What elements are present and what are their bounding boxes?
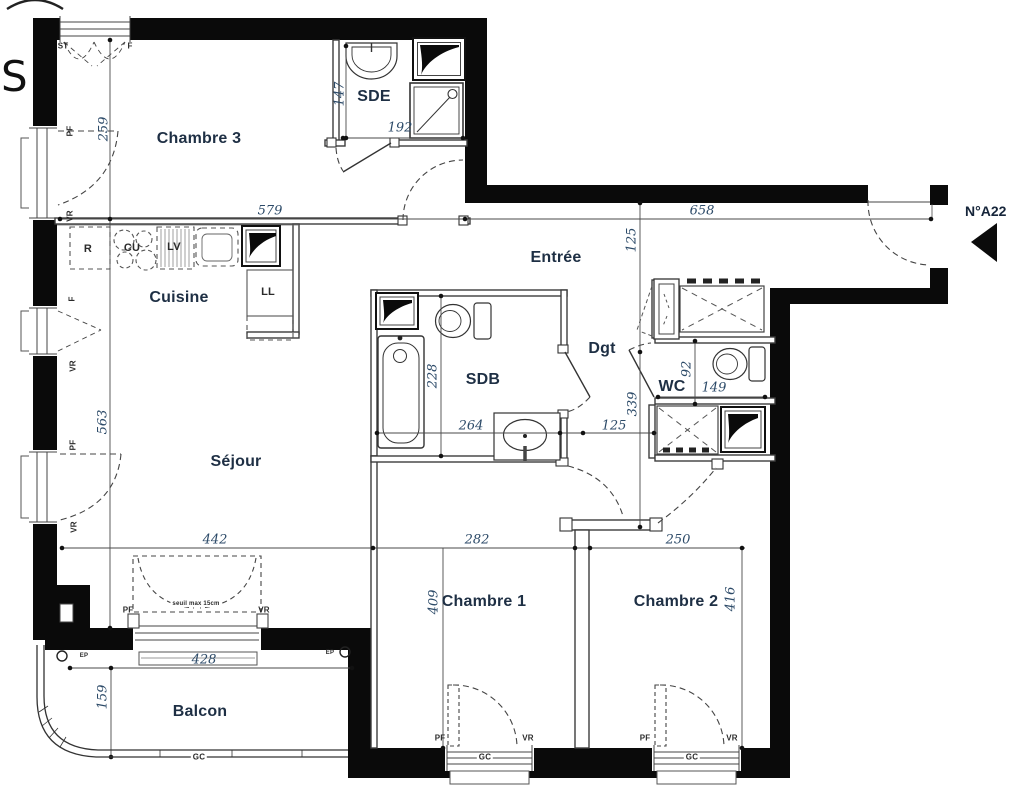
door-leaf-wc [629,350,654,397]
window-chambre3-top [60,16,130,42]
sde-washbasin [346,43,397,79]
compass-arc-icon [7,0,63,9]
washing-machine-box [247,270,293,340]
equipment-icon-cuisine [242,226,280,266]
window-sejour-left [21,450,57,524]
unit-number-label: N°A22 [965,203,1006,219]
window-chambre1 [445,745,534,784]
floor-plan: S N°A22 Chambre 3SDEEntréeCuisineSDBDgtW… [0,0,1035,800]
window-swing-chambre2 [655,685,724,746]
window-sejour-balcony-door [128,614,268,665]
door-leaf-sde [343,143,391,172]
sde-shower [410,83,463,138]
equipment-icon-sde [413,38,465,80]
window-cuisine-left [21,306,57,356]
equipment-icon-chambre2 [721,407,765,452]
fridge-box [70,227,110,269]
dishwasher-box [157,227,194,269]
floor-plan-drawing [0,0,1035,800]
door-leaf-sdb [565,352,590,397]
window-swing-chambre3-left [58,131,118,205]
wc-toilet [713,347,765,381]
door-swing-chambre1 [568,466,623,516]
ep-drain-left [57,651,67,661]
window-swing-sejour-left [60,454,121,520]
entrance-arrow-icon [971,223,997,262]
closet-entree [680,281,764,332]
window-chambre2 [652,745,741,784]
window-swing-chambre1 [448,685,517,746]
cooktop-burners [114,230,156,270]
window-swing-chambre3-top [64,42,125,66]
closet-chambre2 [657,406,718,454]
sdb-bathtub [378,336,424,448]
door-swing-chambre3 [403,160,463,220]
door-swing-entrance [868,200,930,265]
wall-notch [60,604,73,622]
equipment-icons [242,38,765,452]
closet-mirror-door [637,279,679,339]
kitchen-sink [196,228,238,266]
sdb-washbasin [494,413,560,461]
door-swing-chambre2 [658,468,716,523]
sdb-toilet [436,303,492,339]
door-swing-sdb [566,397,590,412]
compass-south-letter: S [1,52,28,101]
door-swing-sde [336,148,343,171]
balcony-door-swing [133,556,261,612]
window-chambre3-left [21,126,57,220]
equipment-icon-sdb [376,293,418,329]
window-swing-cuisine-left [58,311,101,351]
